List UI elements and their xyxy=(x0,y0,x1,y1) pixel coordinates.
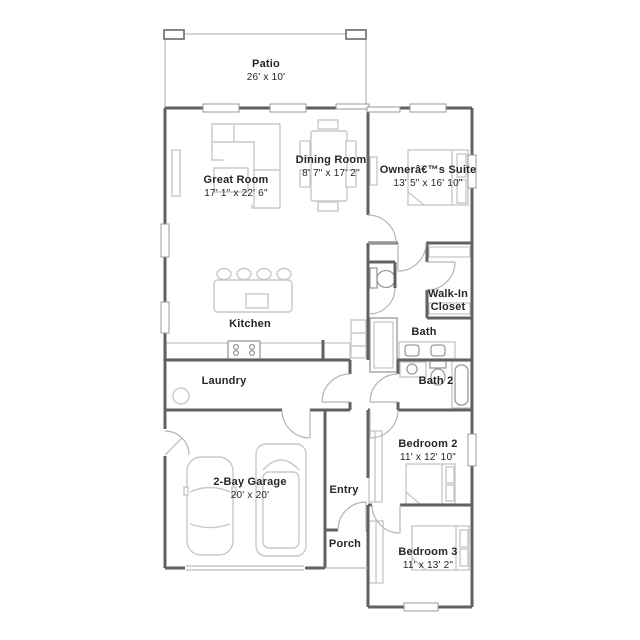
room-dims: 11' x 13' 2" xyxy=(398,559,457,572)
room-dims: 13' 5" x 16' 10" xyxy=(380,177,477,190)
room-name: Patio xyxy=(247,58,285,71)
room-name: Walk-In Closet xyxy=(418,288,478,314)
room-label-bath: Bath xyxy=(411,326,436,339)
laundry-fixture xyxy=(173,388,189,404)
room-label-walk-in-closet: Walk-In Closet xyxy=(418,288,478,314)
stove xyxy=(228,341,260,359)
room-dims: 26' x 10' xyxy=(247,71,285,84)
room-label-entry: Entry xyxy=(329,484,358,497)
room-name: Bath xyxy=(411,326,436,339)
room-dims: 11' x 12' 10" xyxy=(398,451,457,464)
room-name: Entry xyxy=(329,484,358,497)
room-label-garage: 2-Bay Garage 20' x 20' xyxy=(213,476,286,502)
room-label-kitchen: Kitchen xyxy=(229,318,271,331)
floor-plan-drawing xyxy=(0,0,640,640)
garage-door-line xyxy=(186,566,304,570)
room-label-laundry: Laundry xyxy=(202,375,247,388)
kitchen-counters-island xyxy=(166,269,366,360)
room-label-bedroom-2: Bedroom 2 11' x 12' 10" xyxy=(398,438,457,464)
room-dims: 17' 1" x 22' 6" xyxy=(204,187,269,200)
room-label-porch: Porch xyxy=(329,538,361,551)
room-dims: 8' 7" x 17' 2" xyxy=(296,167,367,180)
room-label-bedroom-3: Bedroom 3 11' x 13' 2" xyxy=(398,546,457,572)
room-name: Porch xyxy=(329,538,361,551)
bath-fixtures xyxy=(370,268,455,372)
room-name: 2-Bay Garage xyxy=(213,476,286,489)
room-name: Bedroom 3 xyxy=(398,546,457,559)
room-label-bath-2: Bath 2 xyxy=(419,375,454,388)
room-name: Bedroom 2 xyxy=(398,438,457,451)
room-label-owners-suite: Ownerâ€™s Suite 13' 5" x 16' 10" xyxy=(380,164,477,190)
room-name: Ownerâ€™s Suite xyxy=(380,164,477,177)
room-label-dining-room: Dining Room 8' 7" x 17' 2" xyxy=(296,154,367,180)
room-label-patio: Patio 26' x 10' xyxy=(247,58,285,84)
room-name: Kitchen xyxy=(229,318,271,331)
room-dims: 20' x 20' xyxy=(213,489,286,502)
room-name: Dining Room xyxy=(296,154,367,167)
floor-plan-canvas: Patio 26' x 10' Great Room 17' 1" x 22' … xyxy=(0,0,640,640)
room-label-great-room: Great Room 17' 1" x 22' 6" xyxy=(204,174,269,200)
room-name: Laundry xyxy=(202,375,247,388)
room-name: Bath 2 xyxy=(419,375,454,388)
room-name: Great Room xyxy=(204,174,269,187)
